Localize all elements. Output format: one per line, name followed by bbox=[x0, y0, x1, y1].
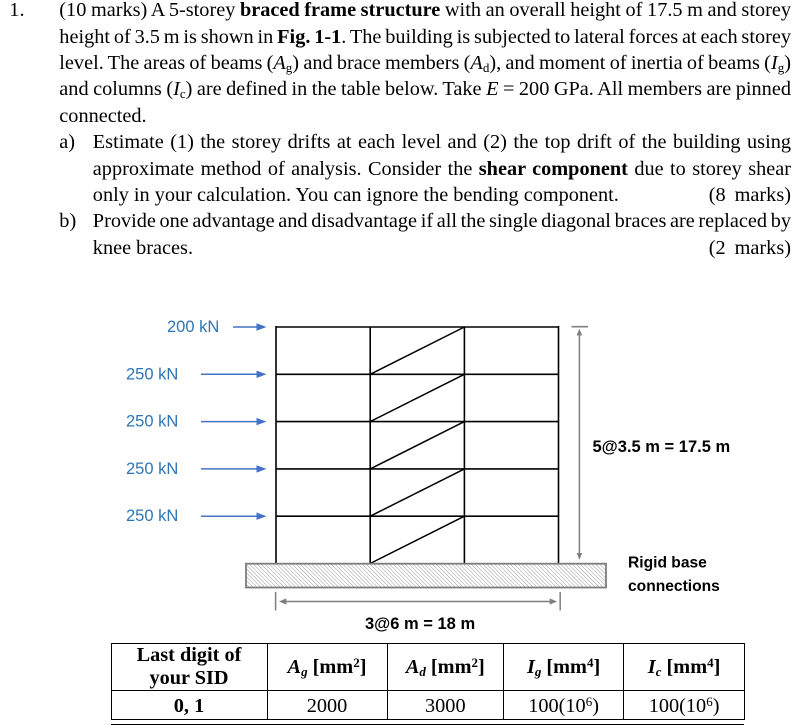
svg-text:3@6 m = 18 m: 3@6 m = 18 m bbox=[365, 615, 475, 633]
svg-text:connections: connections bbox=[628, 578, 720, 595]
svg-text:250 kN: 250 kN bbox=[126, 365, 178, 383]
svg-text:250 kN: 250 kN bbox=[126, 507, 178, 525]
svg-text:5@3.5 m = 17.5 m: 5@3.5 m = 17.5 m bbox=[593, 438, 731, 456]
svg-text:200 kN: 200 kN bbox=[167, 318, 219, 336]
svg-text:250 kN: 250 kN bbox=[126, 460, 178, 478]
svg-text:250 kN: 250 kN bbox=[126, 413, 178, 431]
svg-text:Rigid base: Rigid base bbox=[628, 555, 707, 572]
